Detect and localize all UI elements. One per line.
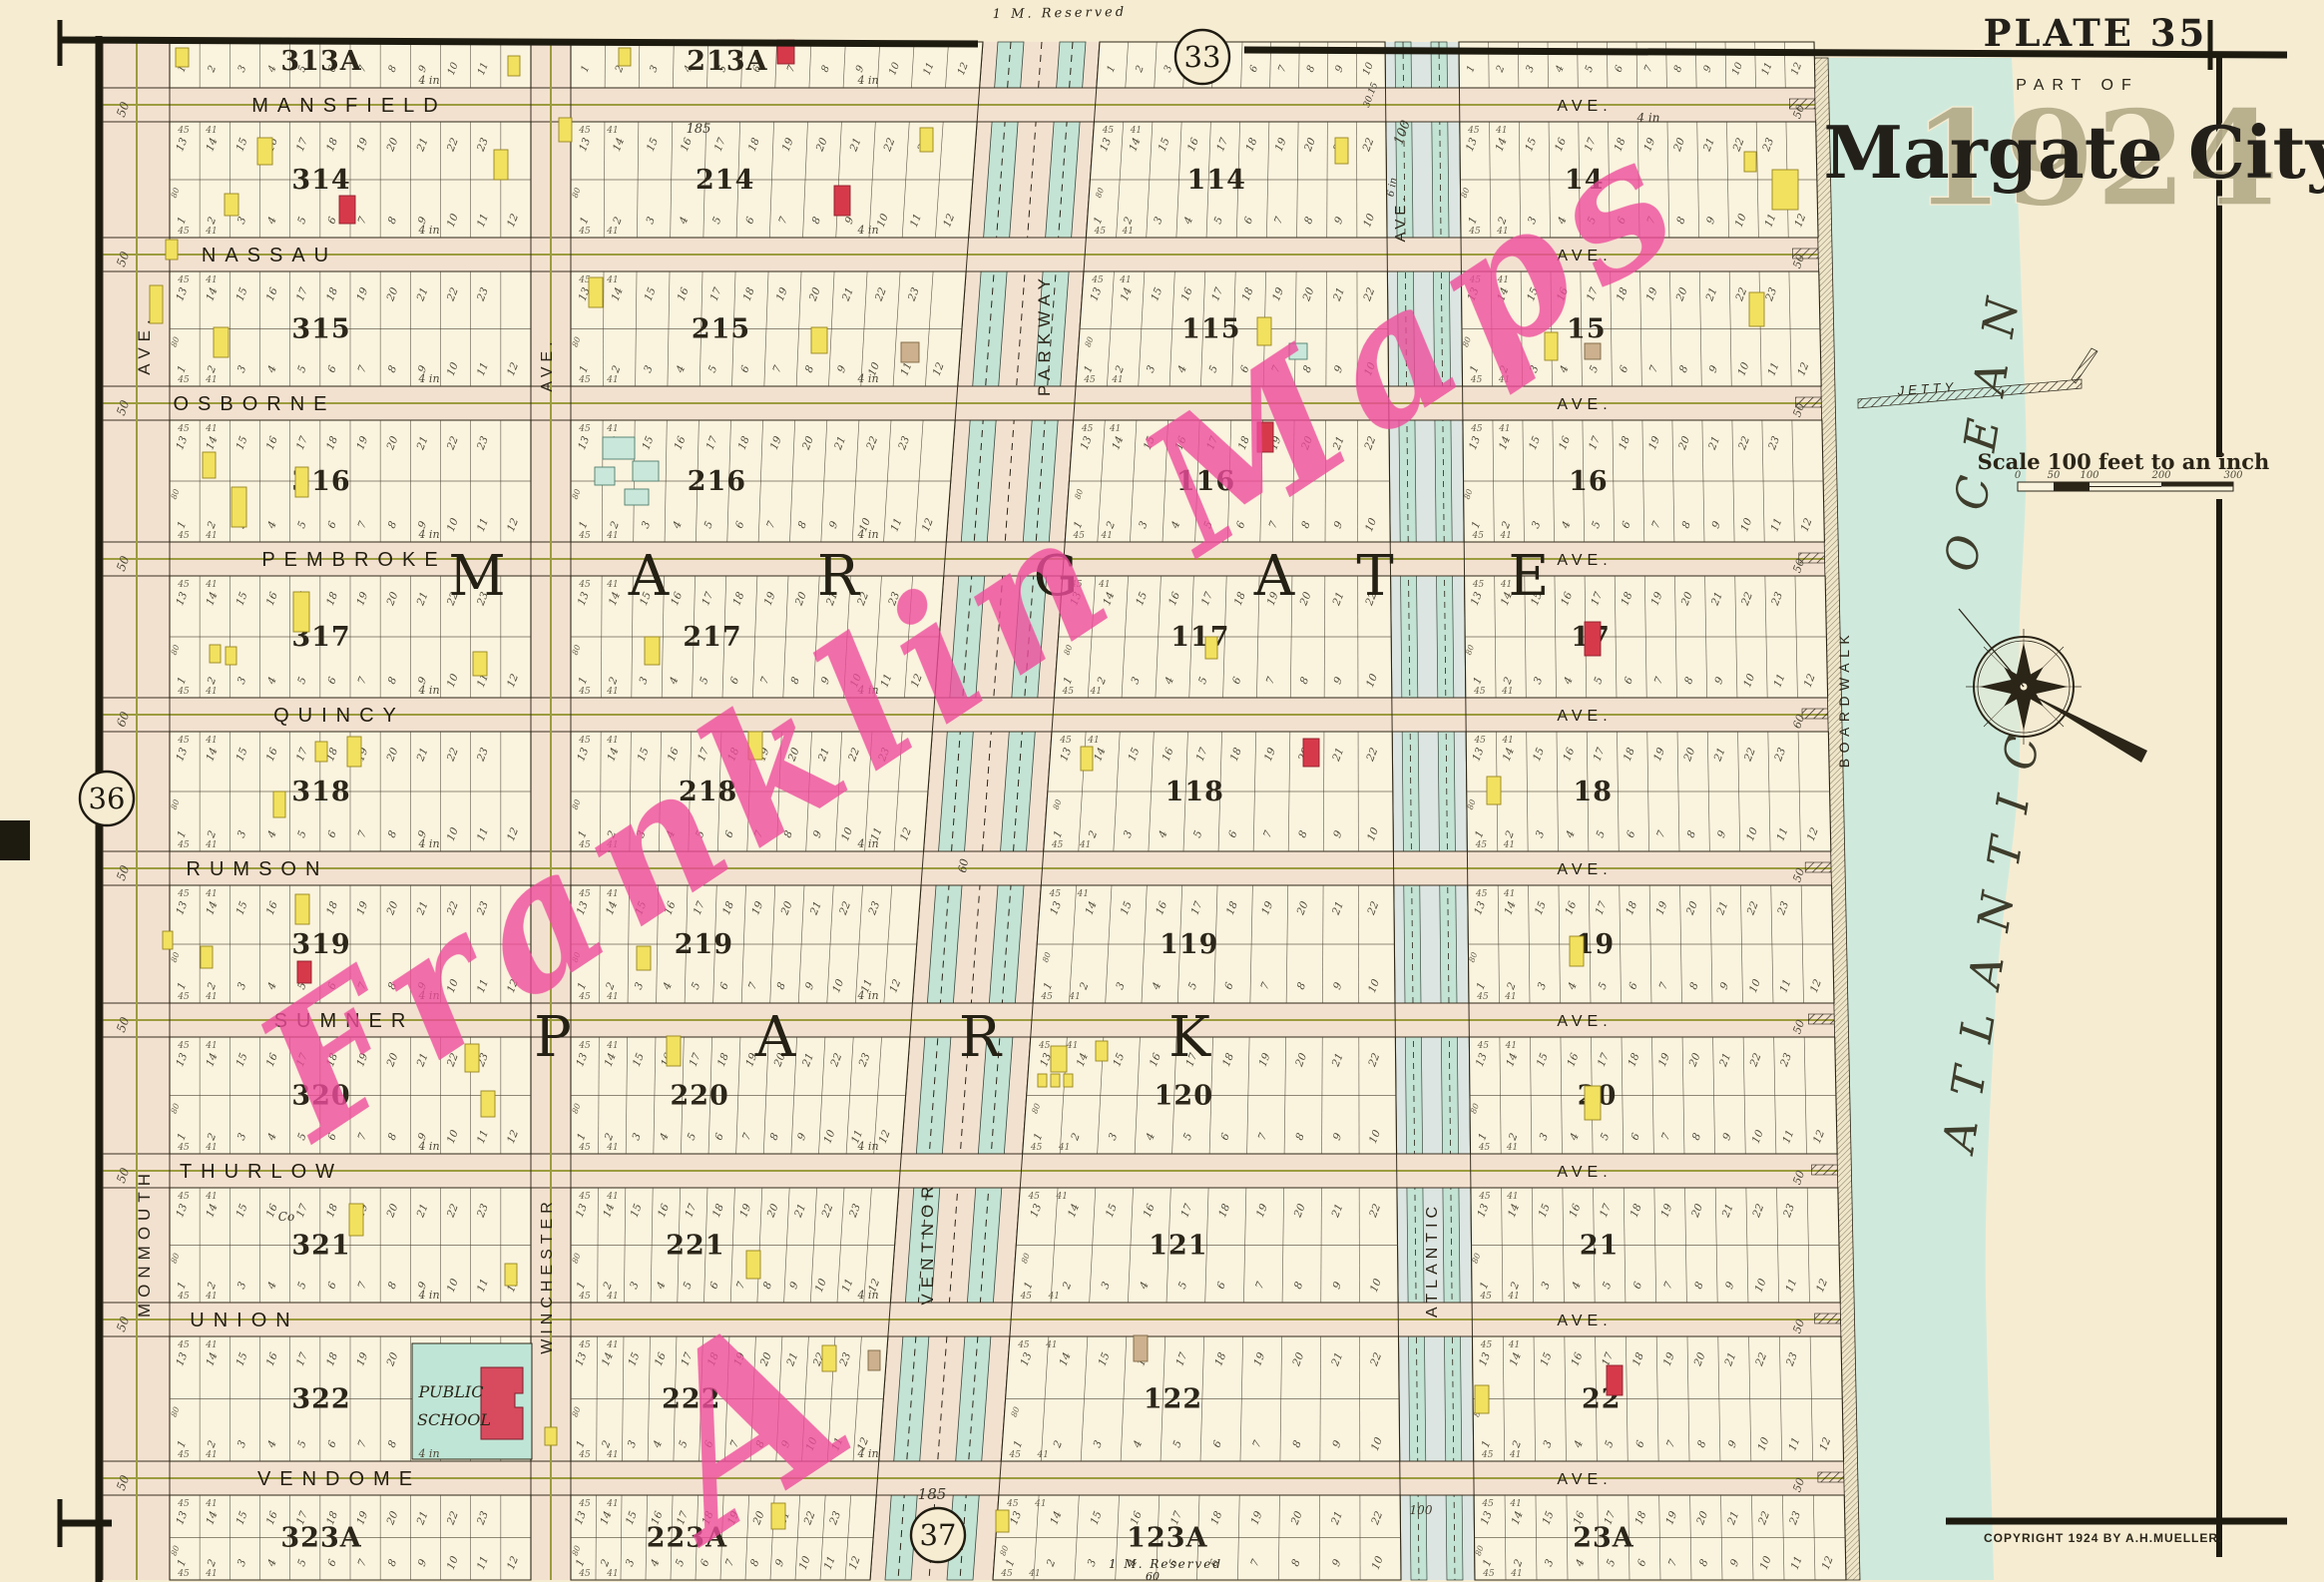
lot-dimension: 41: [1048, 1292, 1060, 1302]
block-number: 220: [670, 1081, 728, 1112]
lot-dimension: 45: [1471, 531, 1484, 541]
lot-dimension: 45: [1038, 1041, 1051, 1051]
copyright-note: COPYRIGHT 1924 BY A.H.MUELLER.: [1984, 1531, 2222, 1545]
building-footprint: [603, 437, 635, 459]
lot-dimension: 41: [205, 126, 217, 136]
lot-dimension: 45: [1477, 1041, 1490, 1051]
margate-letter: A: [628, 544, 670, 609]
building-footprint: [667, 1036, 681, 1066]
boardwalk-label: BOARDWALK: [1836, 630, 1852, 768]
lot-dimension: 45: [1006, 1499, 1019, 1509]
building-footprint: [1772, 170, 1798, 210]
block-number: 217: [683, 622, 741, 653]
lot-dimension: 41: [606, 531, 618, 541]
lot-dimension: 41: [1504, 992, 1516, 1002]
building-footprint: [1744, 152, 1756, 172]
lot-dimension: 41: [205, 687, 217, 697]
building-footprint: [481, 1091, 495, 1117]
avenue-name: UNION: [190, 1310, 298, 1331]
lot-dimension: 41: [205, 889, 217, 899]
adjacent-plate-number: 33: [1184, 40, 1221, 74]
block-number: 119: [1160, 929, 1218, 960]
map-annotation: 185: [918, 1485, 947, 1503]
lot-dimension: 41: [606, 375, 618, 385]
block-number: 321: [291, 1231, 350, 1262]
building-footprint: [1205, 637, 1217, 659]
pipe-size: 4 in: [417, 372, 439, 385]
reserved-note-bottom-width: 60: [1146, 1570, 1160, 1582]
lot-dimension: 45: [578, 1292, 591, 1302]
lot-dimension: 41: [1498, 424, 1510, 434]
scale-bar-part: 0: [2015, 470, 2022, 481]
building-footprint: [589, 277, 603, 307]
pipe-size: 4 in: [856, 1140, 878, 1153]
building-footprint: [293, 592, 309, 632]
street-label-ventnor: VENTNOR: [918, 1180, 937, 1305]
street-label-monmouth: MONMOUTH: [135, 1168, 154, 1318]
scale-bar-part: 300: [2223, 470, 2243, 481]
block-number: 315: [291, 314, 350, 345]
lot-dimension: 41: [1505, 1041, 1517, 1051]
block-number: 118: [1165, 777, 1224, 807]
building-footprint: [201, 946, 213, 968]
building-footprint: [166, 240, 178, 260]
lot-dimension: 45: [1479, 1292, 1492, 1302]
pipe-size: 4 in: [856, 989, 878, 1002]
block-number: 323A: [280, 1523, 361, 1554]
lot-dimension: 41: [205, 992, 217, 1002]
reserved-note-bottom: 1 M. Reserved: [1109, 1557, 1222, 1571]
block-number: 318: [291, 777, 350, 807]
avenue-name: PEMBROKE: [261, 549, 446, 571]
building-footprint: [1081, 747, 1093, 771]
boardwalk-ramp: [1811, 1165, 1837, 1175]
block-number: 314: [291, 165, 350, 196]
building-footprint: [176, 48, 189, 67]
pipe-size: 4 in: [417, 224, 439, 237]
lot-dimension: 45: [177, 736, 190, 746]
pipe-size: 4 in: [417, 684, 439, 697]
lot-dimension: 45: [177, 1192, 190, 1202]
city-title: Margate City: [1823, 110, 2324, 195]
block-number: 221: [666, 1231, 724, 1262]
avenue-name: MANSFIELD: [251, 95, 446, 117]
margate-letter: M: [448, 544, 505, 609]
plate-border-top: [58, 40, 978, 44]
block-number: 216: [688, 466, 746, 497]
scale-bar-part: 100: [2080, 470, 2099, 481]
avenue-name: VENDOME: [257, 1468, 421, 1490]
building-footprint: [214, 327, 229, 357]
lot-dimension: 45: [578, 1569, 591, 1579]
margate-letter: T: [1356, 544, 1393, 609]
lot-dimension: 45: [578, 1192, 591, 1202]
lot-dimension: 45: [1478, 1143, 1491, 1153]
block-number: 123A: [1127, 1523, 1207, 1554]
map-annotation: 60: [956, 857, 971, 873]
lot-dimension: 45: [578, 375, 591, 385]
lot-dimension: 41: [205, 1192, 217, 1202]
avenue-suffix: AVE.: [1557, 1013, 1612, 1030]
pipe-size: 4 in: [856, 74, 878, 87]
lot-dimension: 41: [1499, 531, 1511, 541]
boardwalk-ramp: [1815, 1314, 1841, 1323]
lot-dimension: 45: [1478, 1192, 1491, 1202]
lot-dimension: 45: [1481, 1499, 1494, 1509]
lot-dimension: 41: [606, 736, 618, 746]
building-footprint: [339, 196, 355, 224]
lot-dimension: 45: [578, 1499, 591, 1509]
lot-dimension: 45: [1049, 889, 1062, 899]
street-label-parkway: PARKWAY: [1035, 272, 1054, 396]
avenue-name: NASSAU: [202, 245, 337, 266]
map-svg: 123456789101112313A123456789101112213A12…: [0, 0, 2324, 1582]
lot-dimension: 41: [205, 1569, 217, 1579]
lot-dimension: 45: [177, 1143, 190, 1153]
plate-number: PLATE 35: [1984, 11, 2208, 55]
building-footprint: [633, 461, 659, 481]
lot-dimension: 45: [177, 227, 190, 237]
lot-dimension: 45: [177, 1450, 190, 1460]
park-letter: R: [959, 1005, 1003, 1070]
avenue-name: QUINCY: [273, 705, 405, 727]
lot-dimension: 41: [606, 1499, 618, 1509]
lot-dimension: 41: [1509, 1450, 1521, 1460]
pipe-size: 4 in: [417, 837, 439, 850]
adjacent-plate-number: 37: [920, 1518, 957, 1552]
building-footprint: [163, 931, 173, 949]
building-footprint: [1303, 739, 1319, 767]
lot-dimension: 41: [1028, 1569, 1040, 1579]
lot-dimension: 41: [606, 580, 618, 590]
building-footprint: [295, 467, 308, 497]
lot-dimension: 41: [1087, 736, 1099, 746]
building-footprint: [257, 138, 272, 165]
building-footprint: [1335, 138, 1348, 164]
lot-dimension: 41: [205, 1292, 217, 1302]
public-school-label: SCHOOL: [417, 1410, 491, 1429]
map-content: 123456789101112313A123456789101112213A12…: [0, 0, 2324, 1582]
building-footprint: [1051, 1074, 1060, 1087]
lot-dimension: 41: [1056, 1192, 1068, 1202]
lot-dimension: 41: [1068, 992, 1080, 1002]
lot-dimension: 45: [1480, 1340, 1493, 1350]
lot-dimension: 45: [578, 580, 591, 590]
building-footprint: [494, 150, 508, 180]
lot-dimension: 41: [1508, 1340, 1520, 1350]
building-footprint: [920, 128, 933, 152]
building-footprint: [232, 487, 246, 527]
block-number: 114: [1187, 165, 1246, 196]
lot-dimension: 41: [1501, 736, 1513, 746]
lot-dimension: 41: [1111, 375, 1123, 385]
lot-dimension: 41: [606, 1041, 618, 1051]
street-label-monmouth-ave: AVE.: [135, 313, 154, 374]
lot-dimension: 45: [578, 687, 591, 697]
avenue-suffix: AVE.: [1557, 708, 1612, 725]
lot-dimension: 41: [205, 580, 217, 590]
lot-dimension: 45: [1059, 736, 1072, 746]
lot-dimension: 45: [177, 1292, 190, 1302]
pipe-size: 4 in: [417, 1140, 439, 1153]
lot-dimension: 45: [578, 1143, 591, 1153]
lot-dimension: 41: [606, 687, 618, 697]
lot-dimension: 41: [205, 424, 217, 434]
lot-dimension: 41: [1037, 1450, 1049, 1460]
pipe-size: 4 in: [417, 1289, 439, 1302]
lot-dimension: 45: [1051, 840, 1064, 850]
building-footprint: [811, 327, 827, 353]
lot-dimension: 41: [1501, 687, 1513, 697]
lot-dimension: 41: [606, 1292, 618, 1302]
block-number: 16: [1569, 466, 1609, 497]
lot-dimension: 45: [1091, 275, 1104, 285]
lot-dimension: 45: [1020, 1292, 1033, 1302]
lot-dimension: 41: [606, 424, 618, 434]
building-footprint: [1749, 292, 1764, 326]
binding-mark: [0, 820, 30, 860]
avenue-suffix: AVE.: [1557, 1471, 1612, 1488]
lot-dimension: 45: [1028, 1192, 1041, 1202]
lot-dimension: 41: [606, 1569, 618, 1579]
lot-dimension: 45: [578, 1340, 591, 1350]
lot-dimension: 45: [1102, 126, 1115, 136]
lot-dimension: 45: [1467, 126, 1480, 136]
lot-dimension: 41: [205, 1041, 217, 1051]
lot-dimension: 41: [1507, 1292, 1519, 1302]
lot-dimension: 41: [1119, 275, 1131, 285]
margate-letter: E: [1509, 544, 1550, 609]
building-footprint: [1487, 777, 1501, 804]
block-number: 121: [1149, 1231, 1207, 1262]
avenue-suffix: AVE.: [1557, 552, 1612, 569]
block-number: 18: [1573, 777, 1613, 807]
avenue-name: OSBORNE: [173, 393, 335, 415]
lot-dimension: 41: [205, 1499, 217, 1509]
block-number: 215: [692, 314, 750, 345]
lot-dimension: 41: [606, 126, 618, 136]
public-school-label: PUBLIC: [418, 1382, 484, 1401]
lot-dimension: 45: [177, 126, 190, 136]
map-annotation: 185: [687, 122, 711, 137]
pipe-size: 4 in: [856, 528, 878, 541]
pipe-size: 4 in: [417, 74, 439, 87]
boardwalk-ramp: [1808, 1014, 1834, 1024]
reserved-note-top: 1 M. Reserved: [993, 5, 1128, 22]
scale-bar: Scale 100 feet to an inch 0 50 100 200 3…: [1978, 449, 2270, 491]
block-number: 117: [1170, 622, 1229, 653]
building-footprint: [1475, 1385, 1489, 1413]
block-number: 313A: [280, 46, 361, 77]
lot-dimension: 45: [1009, 1450, 1022, 1460]
block-number: 122: [1144, 1384, 1202, 1415]
building-footprint: [508, 56, 520, 76]
lot-dimension: 41: [205, 531, 217, 541]
lot-dimension: 45: [1017, 1340, 1030, 1350]
lot-dimension: 45: [1473, 687, 1486, 697]
avenue-suffix: AVE.: [1557, 1164, 1612, 1181]
lot-dimension: 41: [1510, 1569, 1522, 1579]
lot-dimension: 41: [1503, 889, 1515, 899]
lot-dimension: 41: [1079, 840, 1091, 850]
lot-dimension: 45: [177, 1041, 190, 1051]
building-footprint: [315, 742, 327, 762]
lot-dimension: 41: [1058, 1143, 1070, 1153]
lot-dimension: 41: [606, 227, 618, 237]
lot-dimension: 45: [177, 889, 190, 899]
lot-dimension: 45: [1475, 840, 1488, 850]
avenue-suffix: AVE.: [1557, 861, 1612, 878]
scale-bar-part: 50: [2048, 470, 2061, 481]
block-number: 120: [1155, 1081, 1213, 1112]
avenue-suffix: AVE.: [1557, 1313, 1612, 1329]
lot-dimension: 41: [606, 275, 618, 285]
lot-dimension: 45: [177, 375, 190, 385]
lot-dimension: 41: [1122, 227, 1134, 237]
lot-dimension: 45: [177, 1499, 190, 1509]
building-footprint: [545, 1427, 557, 1445]
lot-dimension: 45: [177, 687, 190, 697]
lot-dimension: 41: [205, 227, 217, 237]
building-footprint: [1038, 1074, 1047, 1087]
lot-dimension: 41: [205, 375, 217, 385]
lot-dimension: 41: [1090, 687, 1102, 697]
building-footprint: [625, 489, 649, 505]
lot-dimension: 45: [1476, 992, 1489, 1002]
map-annotation: Co: [278, 1210, 294, 1224]
street-label-atlantic: ATLANTIC: [1424, 1202, 1441, 1318]
lot-dimension: 45: [578, 1450, 591, 1460]
lot-dimension: 45: [1482, 1569, 1495, 1579]
lot-dimension: 41: [1495, 126, 1507, 136]
lot-dimension: 41: [1045, 1340, 1057, 1350]
building-footprint: [1051, 1046, 1067, 1072]
lot-dimension: 45: [1473, 736, 1486, 746]
pipe-size: 4 in: [856, 1289, 878, 1302]
building-footprint: [996, 1510, 1009, 1532]
scale-bar-part: 200: [2150, 470, 2171, 481]
building-footprint: [834, 186, 850, 216]
lot-dimension: 45: [578, 227, 591, 237]
building-footprint: [1064, 1074, 1073, 1087]
lot-dimension: 45: [177, 992, 190, 1002]
lot-dimension: 45: [1083, 375, 1096, 385]
lot-dimension: 45: [1040, 992, 1053, 1002]
building-footprint: [226, 647, 236, 665]
map-annotation: 4 in: [1635, 111, 1659, 125]
lot-dimension: 45: [1000, 1569, 1013, 1579]
building-footprint: [225, 194, 238, 216]
building-footprint: [349, 1204, 363, 1236]
lot-dimension: 45: [177, 840, 190, 850]
lot-dimension: 41: [205, 1143, 217, 1153]
lot-dimension: 41: [1077, 889, 1089, 899]
lot-dimension: 41: [1503, 840, 1515, 850]
avenue-suffix: AVE.: [1557, 396, 1612, 413]
avenue-name: RUMSON: [187, 858, 329, 880]
lot-dimension: 41: [205, 1450, 217, 1460]
building-footprint: [203, 452, 216, 478]
lot-dimension: 45: [578, 531, 591, 541]
park-letter: A: [754, 1005, 796, 1070]
block-number: 213A: [687, 46, 767, 77]
lot-dimension: 41: [1066, 1041, 1078, 1051]
lot-dimension: 45: [177, 580, 190, 590]
lot-dimension: 41: [606, 1450, 618, 1460]
lot-dimension: 45: [578, 736, 591, 746]
block-number: 322: [291, 1384, 350, 1415]
building-footprint: [645, 637, 660, 665]
building-footprint: [901, 342, 919, 362]
adjacent-plate-number: 36: [89, 782, 126, 815]
scale-bar-part: [2161, 482, 2233, 487]
lot-dimension: 45: [177, 424, 190, 434]
building-footprint: [595, 467, 615, 485]
pipe-size: 4 in: [856, 837, 878, 850]
building-footprint: [273, 791, 285, 817]
lot-dimension: 41: [205, 275, 217, 285]
lot-dimension: 45: [1094, 227, 1107, 237]
block-number: 23A: [1573, 1523, 1634, 1554]
building-footprint: [868, 1350, 880, 1370]
lot-dimension: 45: [177, 1569, 190, 1579]
lot-dimension: 41: [606, 1143, 618, 1153]
lot-dimension: 45: [1475, 889, 1488, 899]
lot-dimension: 45: [177, 1340, 190, 1350]
street-label-winchester-ave: AVE.: [539, 336, 556, 391]
block-number: 21: [1580, 1231, 1620, 1262]
lot-dimension: 45: [1030, 1143, 1043, 1153]
lot-dimension: 45: [1481, 1450, 1494, 1460]
block-number: 214: [696, 165, 754, 196]
avenue-name: THURLOW: [180, 1161, 343, 1183]
lot-dimension: 41: [205, 840, 217, 850]
building-footprint: [559, 118, 572, 142]
lot-dimension: 45: [578, 1041, 591, 1051]
scale-bar-part: [2054, 482, 2090, 491]
building-footprint: [347, 737, 361, 767]
lot-dimension: 41: [1506, 1192, 1518, 1202]
building-footprint: [822, 1345, 836, 1371]
building-footprint: [505, 1264, 517, 1286]
pipe-size: 4 in: [417, 528, 439, 541]
lot-dimension: 41: [1130, 126, 1142, 136]
building-footprint: [1096, 1041, 1108, 1061]
building-footprint: [619, 48, 631, 66]
lot-dimension: 41: [205, 736, 217, 746]
building-footprint: [1585, 1086, 1601, 1120]
lot-dimension: 45: [177, 531, 190, 541]
lot-dimension: 45: [578, 424, 591, 434]
boardwalk-ramp: [1818, 1472, 1844, 1482]
park-letter: K: [1168, 1005, 1211, 1070]
building-footprint: [1570, 936, 1584, 966]
lot-dimension: 41: [1506, 1143, 1518, 1153]
lot-dimension: 45: [1472, 580, 1485, 590]
pipe-size: 4 in: [856, 372, 878, 385]
lot-dimension: 41: [205, 1340, 217, 1350]
building-footprint: [210, 645, 221, 663]
street-label-winchester: WINCHESTER: [539, 1197, 556, 1354]
building-footprint: [1134, 1335, 1148, 1361]
building-footprint: [473, 652, 487, 676]
lot-dimension: 41: [1034, 1499, 1046, 1509]
lot-dimension: 45: [177, 275, 190, 285]
pipe-size: 4 in: [856, 224, 878, 237]
atlas-plate: 123456789101112313A123456789101112213A12…: [0, 0, 2324, 1582]
map-annotation: 100: [1410, 1503, 1433, 1517]
pipe-size: 4 in: [417, 1447, 439, 1460]
